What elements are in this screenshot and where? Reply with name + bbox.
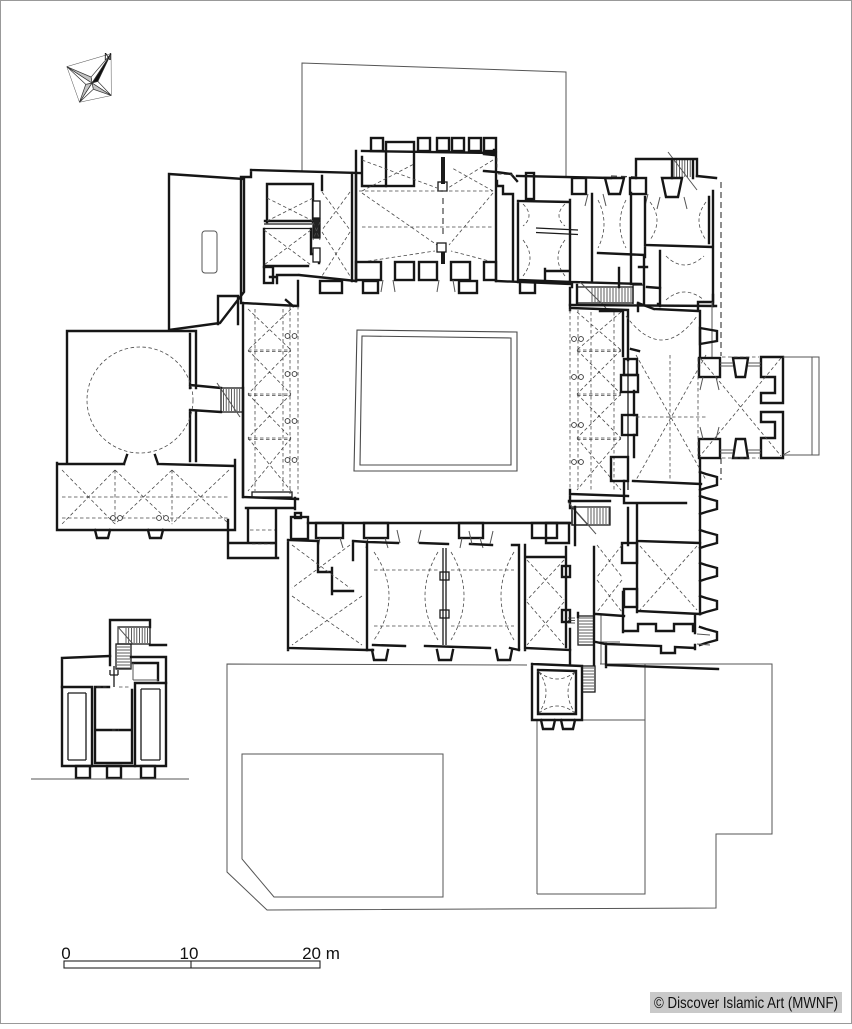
svg-text:N: N — [104, 51, 112, 63]
svg-text:20 m: 20 m — [302, 944, 340, 963]
svg-text:10: 10 — [180, 944, 199, 963]
svg-text:© Discover Islamic Art (MWNF): © Discover Islamic Art (MWNF) — [654, 995, 838, 1012]
svg-text:0: 0 — [61, 944, 70, 963]
